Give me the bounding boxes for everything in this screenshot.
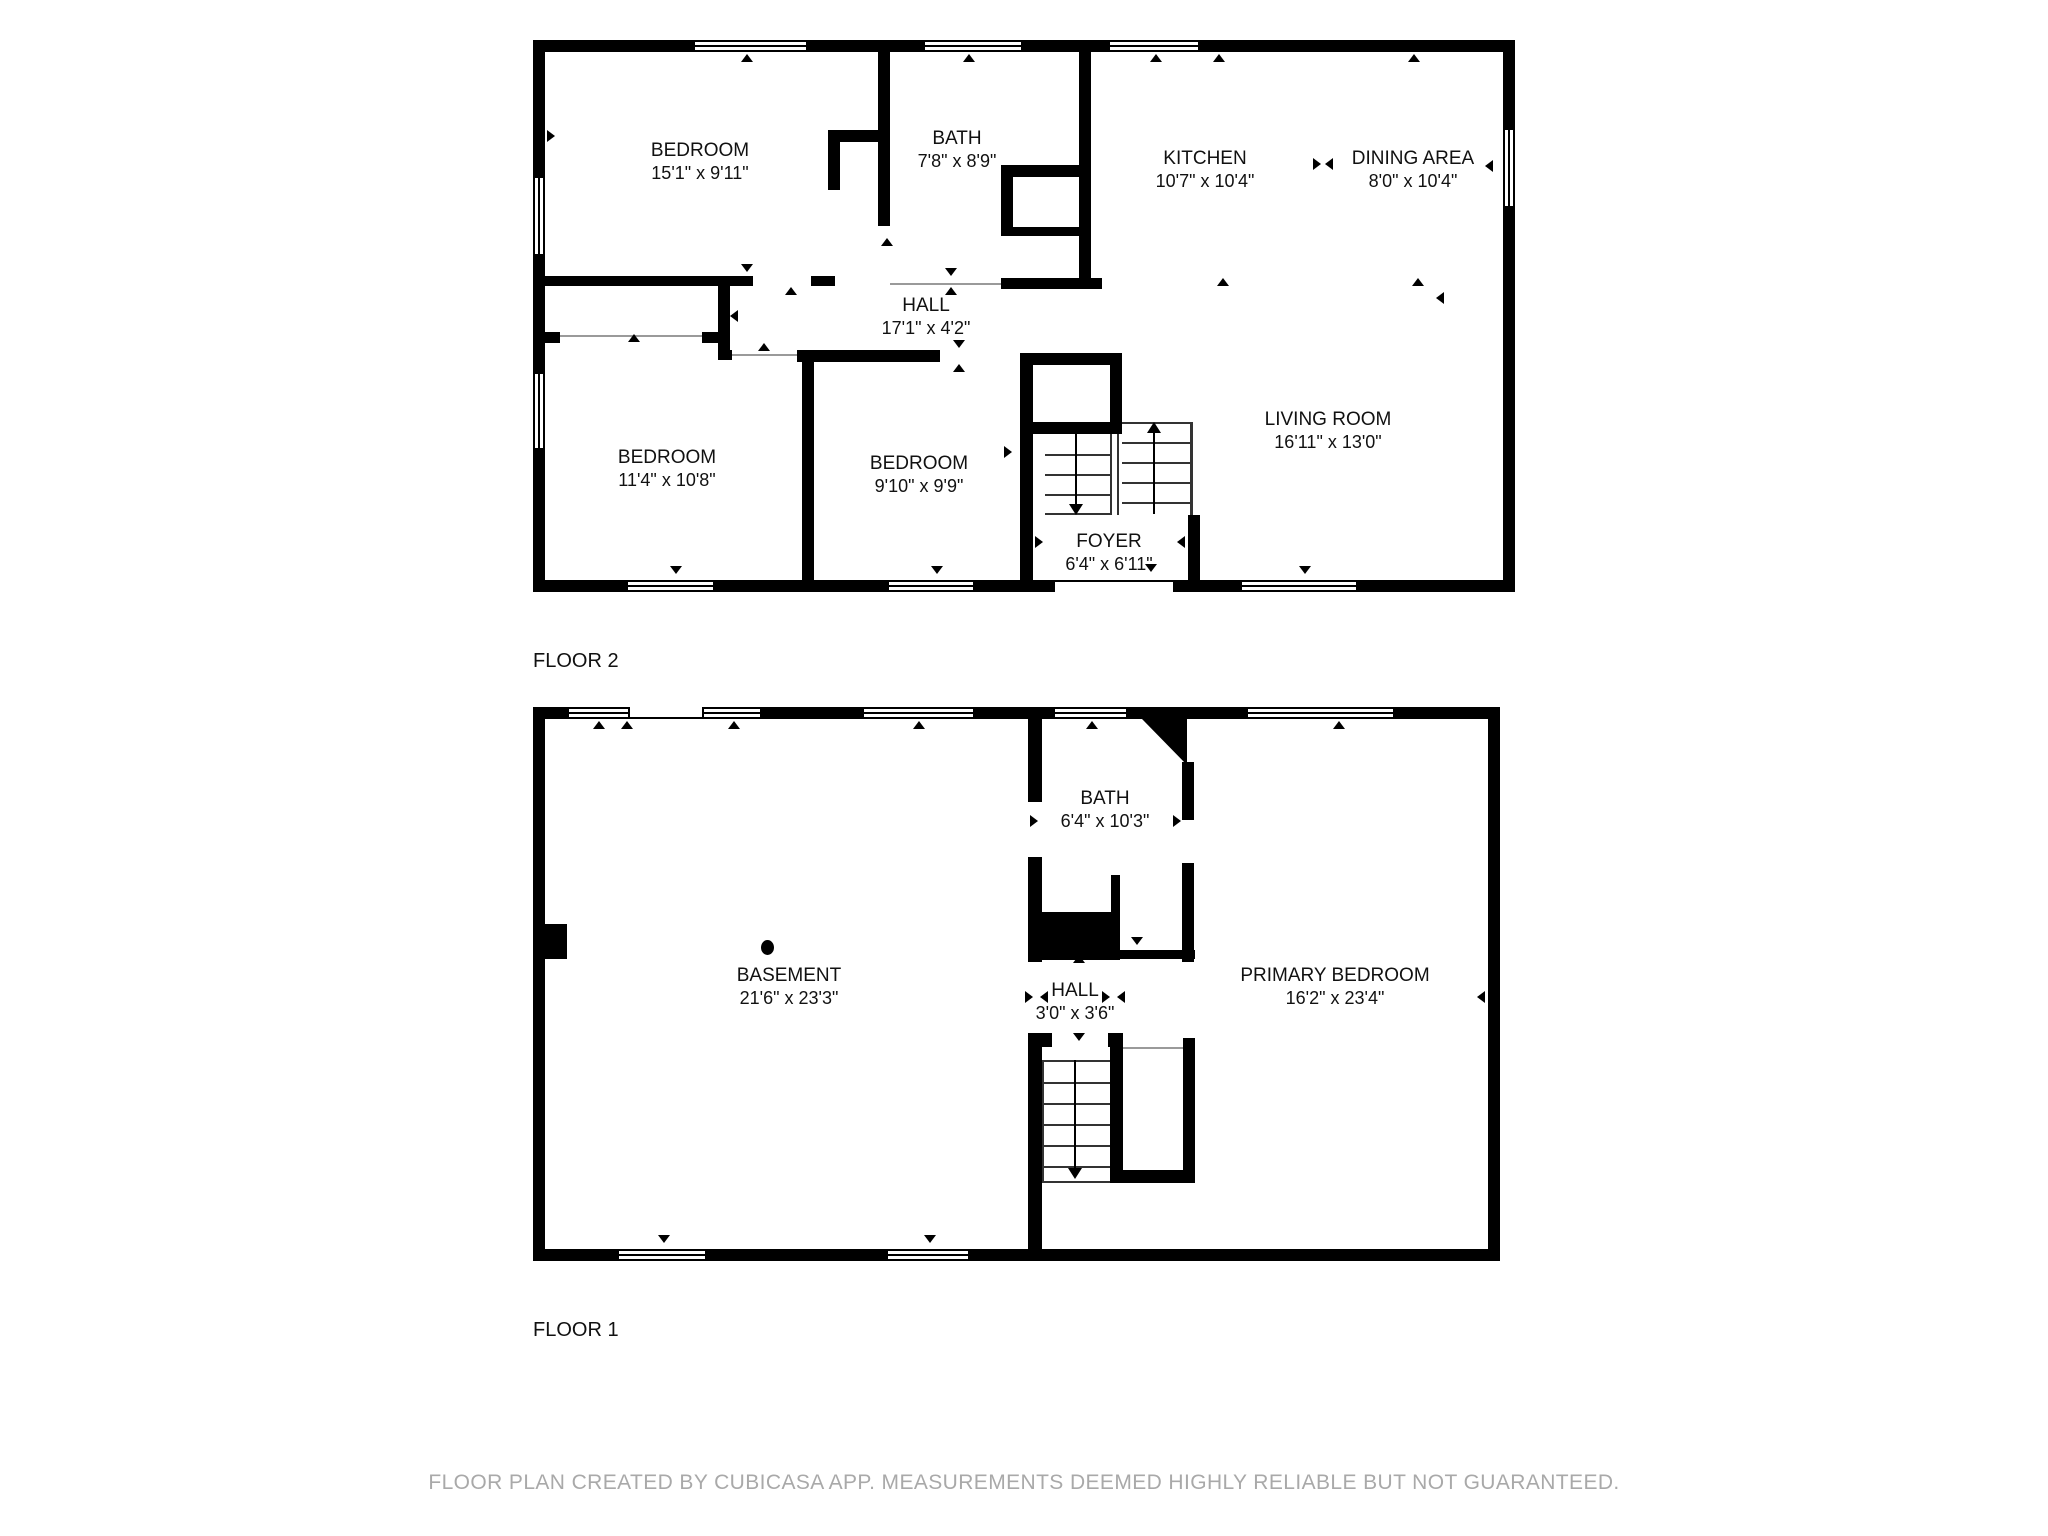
- room-label-bedroom-3: BEDROOM 9'10" x 9'9": [870, 453, 968, 497]
- room-name: HALL: [882, 295, 971, 317]
- room-dims: 21'6" x 23'3": [737, 987, 842, 1009]
- stair-step: [1045, 474, 1110, 476]
- room-label-dining-area: DINING AREA 8'0" x 10'4": [1352, 148, 1474, 192]
- floor-1-plan: BATH 6'4" x 10'3" BASEMENT 21'6" x 23'3"…: [533, 707, 1500, 1261]
- dimension-tick-icon: [728, 721, 740, 729]
- dimension-tick-icon: [1485, 160, 1493, 172]
- window: [886, 1249, 970, 1261]
- closet-front-line: [1123, 1047, 1183, 1049]
- room-name: BEDROOM: [651, 140, 749, 162]
- dimension-tick-icon: [1004, 446, 1012, 458]
- wall-segment: [1001, 165, 1091, 177]
- room-name: LIVING ROOM: [1265, 409, 1392, 431]
- staircase-edge: [1042, 1060, 1044, 1182]
- room-name: BASEMENT: [737, 965, 842, 987]
- wall-segment: [1001, 278, 1102, 289]
- dimension-tick-icon: [1313, 158, 1321, 170]
- dimension-tick-icon: [913, 721, 925, 729]
- disclaimer-text: FLOOR PLAN CREATED BY CUBICASA APP. MEAS…: [0, 1471, 2048, 1495]
- floor-2-plan: BEDROOM 15'1" x 9'11" BATH 7'8" x 8'9" K…: [533, 40, 1515, 592]
- dimension-tick-icon: [1117, 991, 1125, 1003]
- stair-step: [1042, 1082, 1110, 1084]
- door-swing-icon: [1073, 955, 1085, 963]
- room-dims: 8'0" x 10'4": [1352, 170, 1474, 192]
- dimension-tick-icon: [1150, 54, 1162, 62]
- stair-step: [1045, 494, 1110, 496]
- wall-segment: [545, 276, 753, 286]
- wall-segment: [1079, 40, 1091, 278]
- wall-segment: [1111, 875, 1120, 960]
- door-swing-icon: [730, 310, 738, 322]
- room-label-bedroom-2: BEDROOM 11'4" x 10'8": [618, 447, 716, 491]
- stair-divider: [1117, 434, 1119, 515]
- window: [887, 580, 975, 592]
- room-label-basement: BASEMENT 21'6" x 23'3": [737, 965, 842, 1009]
- room-dims: 17'1" x 4'2": [882, 317, 971, 339]
- window: [1246, 707, 1395, 719]
- room-label-primary-bedroom: PRIMARY BEDROOM 16'2" x 23'4": [1240, 965, 1429, 1009]
- dimension-tick-icon: [1299, 566, 1311, 574]
- door-swing-icon: [1035, 536, 1043, 548]
- dimension-tick-icon: [931, 566, 943, 574]
- door-swing-icon: [881, 238, 893, 246]
- room-label-kitchen: KITCHEN 10'7" x 10'4": [1156, 148, 1255, 192]
- wall-opening: [630, 707, 702, 719]
- floor-2-label: FLOOR 2: [533, 650, 619, 673]
- room-name: BATH: [1061, 788, 1150, 810]
- room-dims: 7'8" x 8'9": [918, 150, 997, 172]
- window: [533, 176, 545, 256]
- wall-segment: [1001, 165, 1013, 236]
- room-dims: 10'7" x 10'4": [1156, 170, 1255, 192]
- room-label-living-room: LIVING ROOM 16'11" x 13'0": [1265, 409, 1392, 453]
- dimension-tick-icon: [1086, 721, 1098, 729]
- wall-segment: [718, 350, 732, 360]
- room-dims: 3'0" x 3'6": [1036, 1002, 1115, 1024]
- wall-segment: [797, 350, 940, 362]
- wall-segment: [1488, 707, 1500, 1261]
- window: [1108, 40, 1200, 52]
- wall-segment: [1028, 707, 1042, 802]
- stair-down-arrow-icon: [1068, 1168, 1082, 1179]
- wall-segment: [533, 707, 545, 1261]
- stair-divider: [1110, 434, 1112, 515]
- fixture-block: [1042, 912, 1113, 960]
- door-swing-icon: [953, 364, 965, 372]
- wall-segment: [1188, 515, 1200, 592]
- stair-step: [1122, 442, 1191, 444]
- dimension-tick-icon: [924, 1235, 936, 1243]
- room-name: PRIMARY BEDROOM: [1240, 965, 1429, 987]
- dimension-tick-icon: [741, 54, 753, 62]
- door-swing-icon: [785, 287, 797, 295]
- stair-up-arrow-icon: [1153, 432, 1155, 514]
- window: [1503, 128, 1515, 208]
- window: [923, 40, 1023, 52]
- door-swing-icon: [1073, 1033, 1085, 1041]
- stair-step: [1122, 502, 1191, 504]
- room-dims: 16'2" x 23'4": [1240, 987, 1429, 1009]
- dimension-tick-icon: [1412, 278, 1424, 286]
- room-dims: 15'1" x 9'11": [651, 162, 749, 184]
- wall-segment: [1115, 950, 1195, 959]
- entry-door-opening: [1055, 580, 1173, 592]
- room-name: HALL: [1036, 980, 1115, 1002]
- door-opening-line: [732, 354, 797, 356]
- wall-segment: [1001, 227, 1091, 236]
- stair-down-arrow-icon: [1069, 504, 1083, 515]
- stair-step: [1122, 482, 1191, 484]
- door-swing-icon: [1173, 815, 1181, 827]
- room-name: FOYER: [1065, 531, 1152, 553]
- door-swing-icon: [1131, 937, 1143, 945]
- wall-segment: [1028, 1033, 1042, 1249]
- room-name: BATH: [918, 128, 997, 150]
- room-dims: 6'4" x 10'3": [1061, 810, 1150, 832]
- dimension-tick-icon: [1213, 54, 1225, 62]
- wall-segment: [533, 40, 545, 592]
- room-name: BEDROOM: [618, 447, 716, 469]
- wall-segment: [544, 332, 560, 343]
- room-dims: 6'4" x 6'11": [1065, 553, 1152, 575]
- window: [567, 707, 630, 719]
- staircase-edge: [1042, 1060, 1110, 1062]
- stair-up-arrow-icon: [1147, 422, 1161, 433]
- wall-segment: [718, 286, 730, 360]
- light-fixture-dot: [761, 940, 774, 955]
- dimension-tick-icon: [1436, 292, 1444, 304]
- room-label-hall-2: HALL 17'1" x 4'2": [882, 295, 971, 339]
- door-swing-icon: [741, 264, 753, 272]
- room-name: KITCHEN: [1156, 148, 1255, 170]
- dimension-tick-icon: [621, 721, 633, 729]
- window: [702, 707, 762, 719]
- stair-step: [1042, 1181, 1110, 1183]
- wall-segment: [828, 142, 840, 190]
- wall-segment: [811, 276, 835, 286]
- door-swing-icon: [1030, 815, 1038, 827]
- room-label-bedroom-1: BEDROOM 15'1" x 9'11": [651, 140, 749, 184]
- stair-down-arrow-icon: [1075, 434, 1077, 506]
- window: [626, 580, 715, 592]
- wall-segment: [1183, 1038, 1195, 1183]
- wall-segment: [1033, 422, 1122, 434]
- wall-segment: [1108, 1033, 1123, 1047]
- floor-plan-page: { "floors": [ { "id": "floor-2", "label"…: [0, 0, 2048, 1536]
- angled-wall: [1142, 719, 1187, 765]
- window: [693, 40, 808, 52]
- stair-down-arrow-icon: [1074, 1060, 1076, 1170]
- door-swing-icon: [758, 343, 770, 351]
- wall-segment: [1110, 1047, 1123, 1183]
- window: [862, 707, 975, 719]
- dimension-tick-icon: [1025, 991, 1033, 1003]
- room-label-bath-2: BATH 7'8" x 8'9": [918, 128, 997, 172]
- room-label-bath-1: BATH 6'4" x 10'3": [1061, 788, 1150, 832]
- door-opening-line: [890, 283, 1001, 285]
- room-dims: 9'10" x 9'9": [870, 475, 968, 497]
- window: [533, 372, 545, 450]
- dimension-tick-icon: [1022, 446, 1030, 458]
- dimension-tick-icon: [1333, 721, 1345, 729]
- window: [617, 1249, 707, 1261]
- room-dims: 11'4" x 10'8": [618, 469, 716, 491]
- door-swing-icon: [1177, 536, 1185, 548]
- stair-step: [1042, 1103, 1110, 1105]
- wall-segment: [1028, 857, 1042, 962]
- chimney-block: [545, 924, 567, 959]
- wall-segment: [1020, 353, 1033, 580]
- room-label-foyer: FOYER 6'4" x 6'11": [1065, 531, 1152, 575]
- wall-segment: [1503, 40, 1515, 592]
- door-swing-icon: [628, 334, 640, 342]
- stair-step: [1042, 1145, 1110, 1147]
- dimension-tick-icon: [1325, 158, 1333, 170]
- wall-segment: [802, 350, 814, 580]
- dimension-tick-icon: [658, 1235, 670, 1243]
- dimension-tick-icon: [1477, 991, 1485, 1003]
- room-name: DINING AREA: [1352, 148, 1474, 170]
- door-swing-icon: [945, 287, 957, 295]
- stair-step: [1042, 1124, 1110, 1126]
- window: [1240, 580, 1358, 592]
- wall-segment: [1028, 1033, 1052, 1047]
- wall-segment: [1182, 863, 1194, 962]
- door-swing-icon: [945, 268, 957, 276]
- door-swing-icon: [953, 340, 965, 348]
- stair-step: [1045, 454, 1110, 456]
- dimension-tick-icon: [963, 54, 975, 62]
- wall-segment: [533, 40, 1515, 52]
- stair-step: [1122, 462, 1191, 464]
- dimension-tick-icon: [1217, 278, 1229, 286]
- window: [1053, 707, 1128, 719]
- room-dims: 16'11" x 13'0": [1265, 431, 1392, 453]
- dimension-tick-icon: [593, 721, 605, 729]
- wall-segment: [1029, 353, 1122, 365]
- room-name: BEDROOM: [870, 453, 968, 475]
- dimension-tick-icon: [547, 130, 555, 142]
- room-label-hall-1: HALL 3'0" x 3'6": [1036, 980, 1115, 1024]
- floor-1-label: FLOOR 1: [533, 1319, 619, 1342]
- dimension-tick-icon: [670, 566, 682, 574]
- dimension-tick-icon: [1408, 54, 1420, 62]
- wall-segment: [878, 40, 890, 226]
- wall-segment: [1182, 762, 1194, 820]
